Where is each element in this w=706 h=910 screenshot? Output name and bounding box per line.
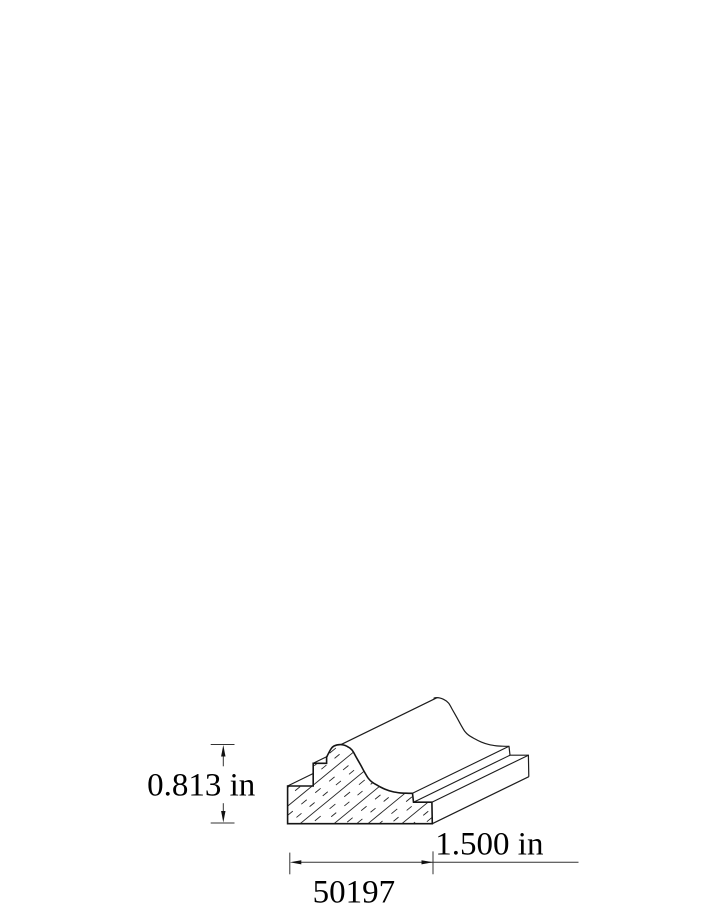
svg-text:0.813 in: 0.813 in	[147, 768, 255, 804]
svg-text:50197: 50197	[313, 875, 396, 910]
svg-text:1.500 in: 1.500 in	[435, 827, 543, 863]
